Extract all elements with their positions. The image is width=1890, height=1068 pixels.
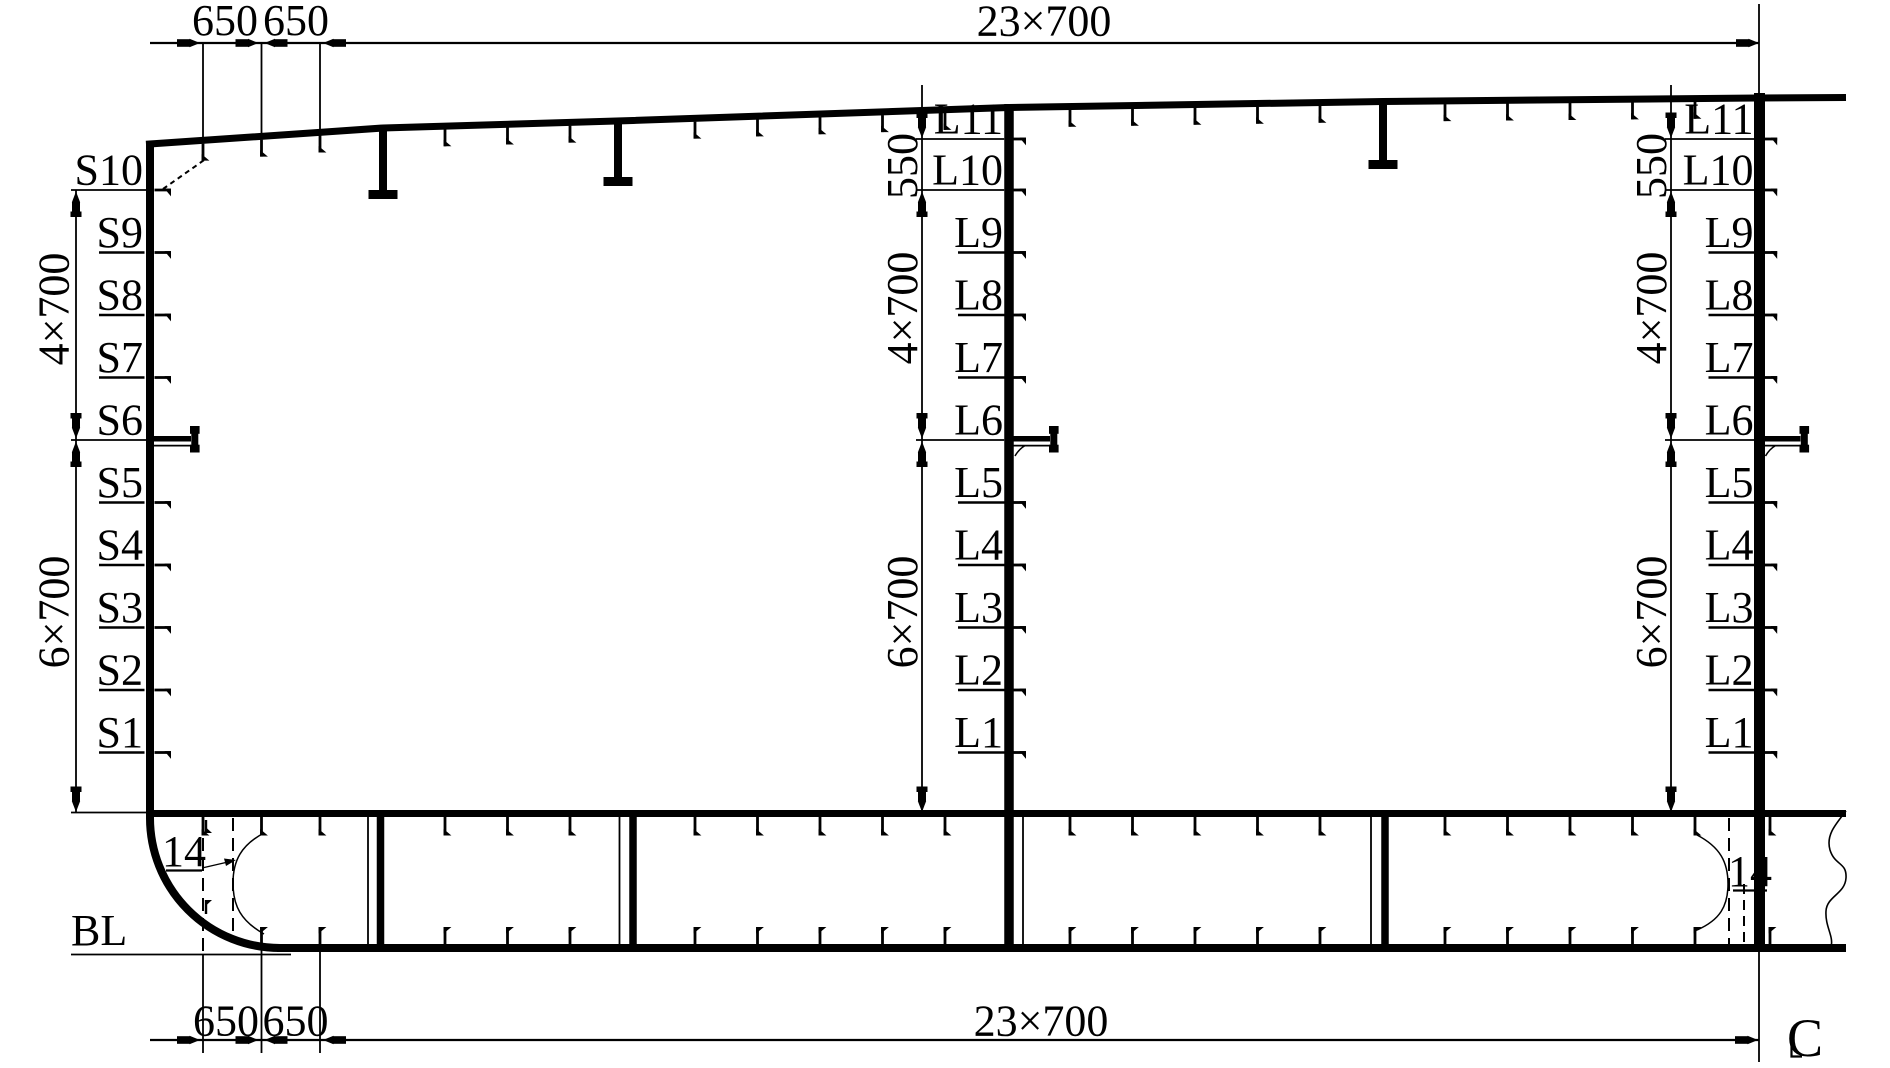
svg-text:550: 550 [878,133,927,199]
svg-text:S5: S5 [97,458,143,507]
svg-text:L8: L8 [954,271,1003,320]
svg-text:L11: L11 [1684,95,1753,144]
svg-text:L3: L3 [954,583,1003,632]
svg-text:650: 650 [263,0,329,45]
svg-text:L2: L2 [954,646,1003,695]
svg-text:S10: S10 [75,146,143,195]
svg-text:L10: L10 [1683,146,1754,195]
svg-text:6×700: 6×700 [878,556,927,669]
svg-text:4×700: 4×700 [1627,252,1676,365]
svg-text:S7: S7 [97,333,143,382]
svg-text:L9: L9 [954,208,1003,257]
svg-text:S8: S8 [97,271,143,320]
svg-text:S6: S6 [97,396,143,445]
svg-text:L4: L4 [1705,521,1754,570]
svg-text:L4: L4 [954,521,1003,570]
svg-text:S4: S4 [97,521,143,570]
svg-text:S9: S9 [97,208,143,257]
svg-text:BL: BL [71,906,127,955]
svg-text:14: 14 [1728,847,1772,896]
svg-text:6×700: 6×700 [1627,556,1676,669]
svg-text:L10: L10 [932,146,1003,195]
svg-text:L7: L7 [954,333,1003,382]
svg-text:650: 650 [263,997,329,1046]
svg-text:6×700: 6×700 [30,556,79,669]
svg-text:L8: L8 [1705,271,1754,320]
svg-text:S3: S3 [97,583,143,632]
svg-text:650: 650 [192,0,258,45]
svg-text:23×700: 23×700 [974,997,1109,1046]
svg-text:4×700: 4×700 [878,252,927,365]
svg-text:23×700: 23×700 [977,0,1112,46]
svg-text:L6: L6 [1705,396,1754,445]
svg-text:L7: L7 [1705,333,1754,382]
svg-text:L2: L2 [1705,646,1754,695]
svg-text:550: 550 [1627,133,1676,199]
svg-text:L5: L5 [954,458,1003,507]
svg-text:L9: L9 [1705,208,1754,257]
svg-text:650: 650 [193,997,259,1046]
svg-text:4×700: 4×700 [30,253,79,366]
svg-text:L1: L1 [1705,708,1754,757]
svg-text:L3: L3 [1705,583,1754,632]
svg-text:L6: L6 [954,396,1003,445]
svg-text:14: 14 [162,827,206,876]
svg-text:S2: S2 [97,646,143,695]
svg-text:L11: L11 [934,95,1003,144]
svg-text:L5: L5 [1705,458,1754,507]
svg-text:S1: S1 [97,708,143,757]
svg-text:L1: L1 [954,708,1003,757]
